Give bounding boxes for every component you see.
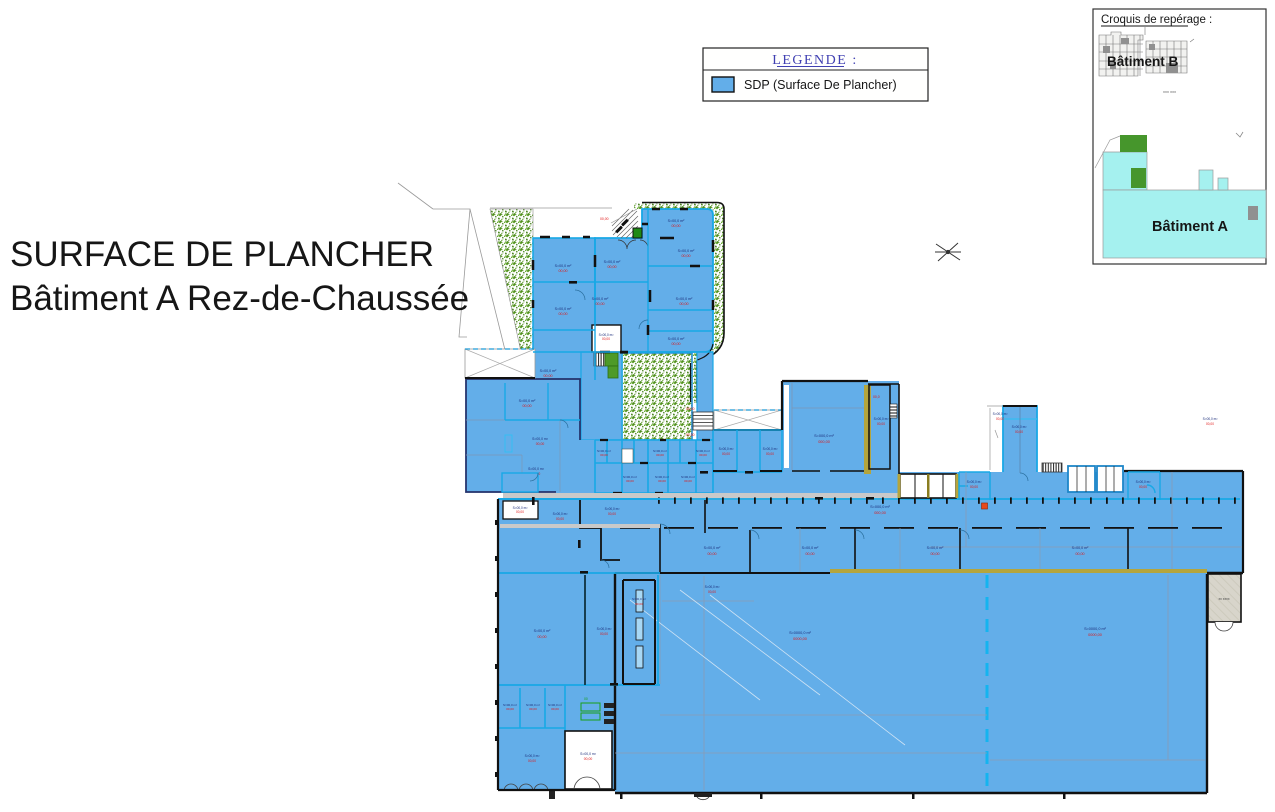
svg-text:S=00,0 m²: S=00,0 m² — [553, 512, 568, 516]
svg-text:00,00: 00,00 — [516, 510, 524, 514]
svg-text:S=00,0 m²: S=00,0 m² — [678, 249, 695, 253]
svg-text:S=00,0 m²: S=00,0 m² — [592, 297, 609, 301]
svg-text:000,00: 000,00 — [874, 511, 886, 515]
svg-text:S=00,0 m²: S=00,0 m² — [632, 597, 646, 601]
svg-text:00,00: 00,00 — [1076, 552, 1085, 556]
svg-text:Croquis de repérage :: Croquis de repérage : — [1101, 14, 1212, 26]
svg-text:00,00: 00,00 — [672, 224, 681, 228]
svg-text:S=00,0 m²: S=00,0 m² — [532, 437, 549, 441]
svg-text:00: 00 — [584, 697, 588, 701]
svg-text:S=0000,0 m²: S=0000,0 m² — [789, 631, 812, 635]
svg-text:0000,00: 0000,00 — [793, 637, 807, 641]
svg-text:S=00,0 m²: S=00,0 m² — [605, 507, 620, 511]
svg-text:00,00: 00,00 — [626, 479, 634, 483]
svg-text:00,00: 00,00 — [596, 302, 605, 306]
svg-text:S=00,0 m²: S=00,0 m² — [597, 627, 612, 631]
svg-text:S=00,0 m²: S=00,0 m² — [668, 219, 685, 223]
svg-text:S=000,0 m²: S=000,0 m² — [870, 505, 890, 509]
svg-text:S=00,0 m²: S=00,0 m² — [927, 546, 944, 550]
svg-text:00,00: 00,00 — [602, 337, 610, 341]
svg-text:S=00,0 m²: S=00,0 m² — [1203, 417, 1218, 421]
svg-text:00,00: 00,00 — [1206, 422, 1214, 426]
svg-text:00,00: 00,00 — [766, 452, 774, 456]
svg-text:S=00,0 m²: S=00,0 m² — [604, 260, 621, 264]
svg-text:00,00: 00,00 — [538, 635, 547, 639]
svg-text:SDP (Surface De Plancher): SDP (Surface De Plancher) — [744, 78, 897, 92]
svg-text:00,00: 00,00 — [1015, 430, 1023, 434]
svg-text:S=00,0 m²: S=00,0 m² — [1072, 546, 1089, 550]
svg-text:S=00,0 m²: S=00,0 m² — [676, 297, 693, 301]
svg-text:00,00: 00,00 — [970, 485, 978, 489]
svg-text:00,00: 00,00 — [658, 479, 666, 483]
svg-text:00,00: 00,00 — [544, 374, 553, 378]
svg-text:S=00,0 m²: S=00,0 m² — [763, 447, 778, 451]
svg-text:S=00,0 m²: S=00,0 m² — [704, 546, 721, 550]
svg-text:LEGENDE :: LEGENDE : — [772, 53, 857, 68]
svg-text:00,0: 00,0 — [873, 395, 880, 399]
svg-text:00,00: 00,00 — [877, 422, 885, 426]
svg-text:xxx xxx: xxx xxx — [1163, 89, 1176, 94]
svg-text:00,00: 00,00 — [559, 269, 568, 273]
svg-text:000,00: 000,00 — [818, 440, 830, 444]
svg-text:00,00: 00,00 — [635, 602, 643, 606]
svg-text:0000,00: 0000,00 — [1088, 633, 1102, 637]
svg-text:00,00: 00,00 — [523, 404, 532, 408]
svg-text:00,00: 00,00 — [722, 452, 730, 456]
svg-text:00,00: 00,00 — [608, 512, 616, 516]
svg-text:S=00,0 m²: S=00,0 m² — [874, 417, 889, 421]
svg-text:S=00,0 m²: S=00,0 m² — [802, 546, 819, 550]
svg-text:00,00: 00,00 — [600, 632, 608, 636]
svg-text:xx xxxx: xx xxxx — [1218, 597, 1229, 601]
svg-text:00,00: 00,00 — [608, 265, 617, 269]
svg-text:S=00,0 m²: S=00,0 m² — [1136, 480, 1151, 484]
svg-text:00,00: 00,00 — [996, 417, 1004, 421]
svg-text:00,00: 00,00 — [708, 590, 716, 594]
svg-text:00,00: 00,00 — [559, 312, 568, 316]
svg-text:00,00: 00,00 — [506, 707, 514, 711]
svg-text:S=00,0 m²: S=00,0 m² — [993, 412, 1008, 416]
svg-text:00,00: 00,00 — [686, 433, 695, 437]
svg-text:Bâtiment B: Bâtiment B — [1107, 54, 1179, 69]
svg-text:S=00,0 m²: S=00,0 m² — [555, 264, 572, 268]
svg-text:00,00: 00,00 — [680, 302, 689, 306]
svg-text:S=00,0 m²: S=00,0 m² — [1012, 425, 1027, 429]
svg-text:00,00: 00,00 — [551, 707, 559, 711]
svg-text:00,00: 00,00 — [600, 217, 609, 221]
svg-text:S=000,0 m²: S=000,0 m² — [814, 434, 834, 438]
svg-text:00,00: 00,00 — [672, 342, 681, 346]
svg-text:S=00,0 m²: S=00,0 m² — [580, 752, 597, 756]
svg-text:SURFACE DE PLANCHER: SURFACE DE PLANCHER — [10, 235, 434, 274]
svg-text:00,00: 00,00 — [529, 707, 537, 711]
svg-text:00,00: 00,00 — [536, 442, 545, 446]
svg-text:00,00: 00,00 — [1139, 485, 1147, 489]
svg-text:Bâtiment A Rez-de-Chaussée: Bâtiment A Rez-de-Chaussée — [10, 279, 469, 318]
svg-text:00,00: 00,00 — [686, 407, 695, 411]
svg-text:S=00,0 m²: S=00,0 m² — [967, 480, 982, 484]
svg-text:00,00: 00,00 — [656, 453, 664, 457]
svg-text:00,00: 00,00 — [682, 254, 691, 258]
svg-text:S=00,0 m²: S=00,0 m² — [540, 369, 557, 373]
svg-text:00,00: 00,00 — [699, 453, 707, 457]
svg-text:00,00: 00,00 — [708, 552, 717, 556]
svg-text:S=00,0 m²: S=00,0 m² — [525, 754, 540, 758]
svg-text:00,00: 00,00 — [528, 759, 536, 763]
svg-text:S=0000,0 m²: S=0000,0 m² — [1084, 627, 1107, 631]
svg-text:S=00,0 m²: S=00,0 m² — [555, 307, 572, 311]
svg-text:S=00,0 m²: S=00,0 m² — [668, 337, 685, 341]
svg-text:S=00,0 m²: S=00,0 m² — [719, 447, 734, 451]
svg-text:00,00: 00,00 — [684, 479, 692, 483]
svg-text:S=00,0 m²: S=00,0 m² — [534, 629, 551, 633]
svg-text:00,00: 00,00 — [584, 757, 593, 761]
svg-text:Bâtiment A: Bâtiment A — [1152, 219, 1229, 235]
svg-text:S=00,0 m²: S=00,0 m² — [705, 585, 720, 589]
svg-text:S=00,0 m²: S=00,0 m² — [528, 467, 545, 471]
svg-text:00,00: 00,00 — [931, 552, 940, 556]
svg-text:00,00: 00,00 — [806, 552, 815, 556]
svg-text:00,00: 00,00 — [600, 453, 608, 457]
svg-text:00,00: 00,00 — [556, 517, 564, 521]
svg-text:S=00,0 m²: S=00,0 m² — [519, 399, 536, 403]
